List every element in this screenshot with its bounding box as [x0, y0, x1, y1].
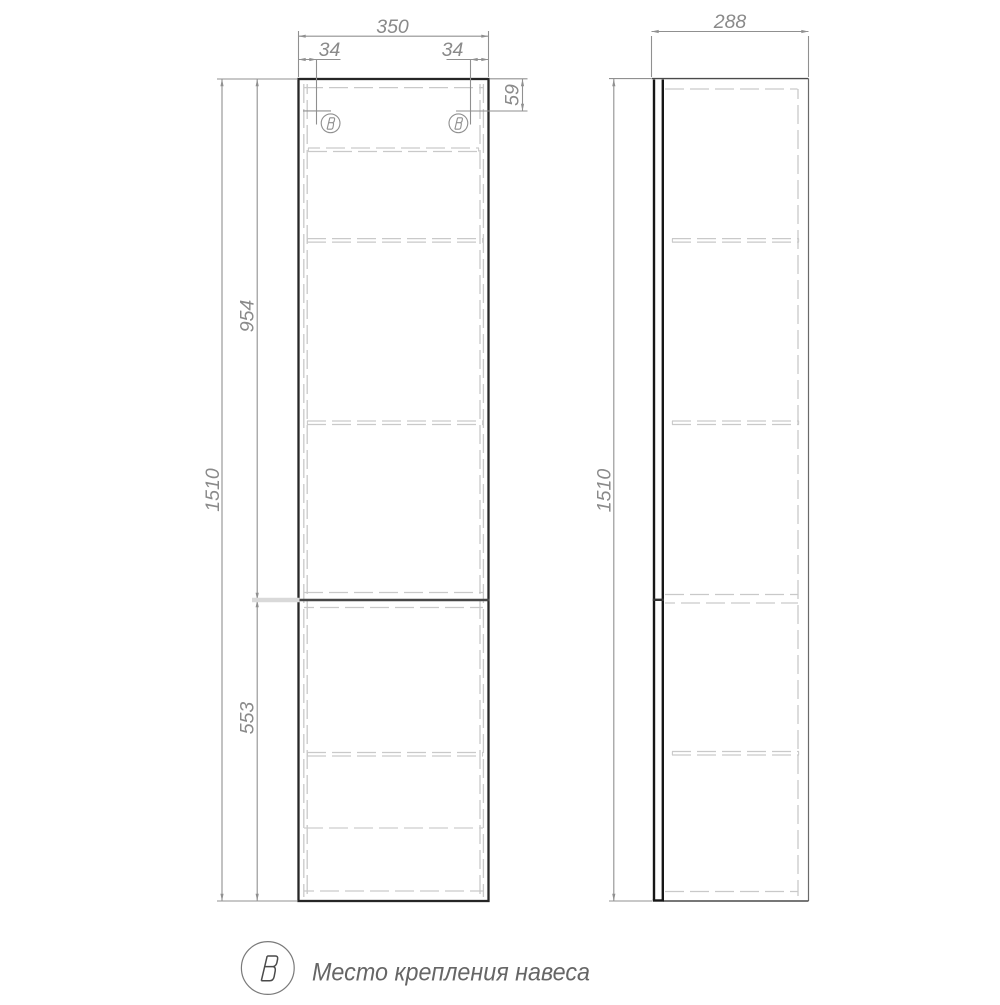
svg-text:1510: 1510: [594, 469, 616, 513]
svg-text:350: 350: [376, 16, 409, 38]
svg-text:34: 34: [319, 39, 341, 61]
svg-text:59: 59: [502, 84, 524, 106]
svg-text:34: 34: [442, 39, 464, 61]
svg-text:553: 553: [237, 702, 259, 735]
svg-text:954: 954: [237, 300, 259, 333]
svg-text:Место крепления навеса: Место крепления навеса: [312, 959, 590, 987]
svg-text:1510: 1510: [202, 468, 224, 512]
svg-text:288: 288: [713, 11, 747, 33]
